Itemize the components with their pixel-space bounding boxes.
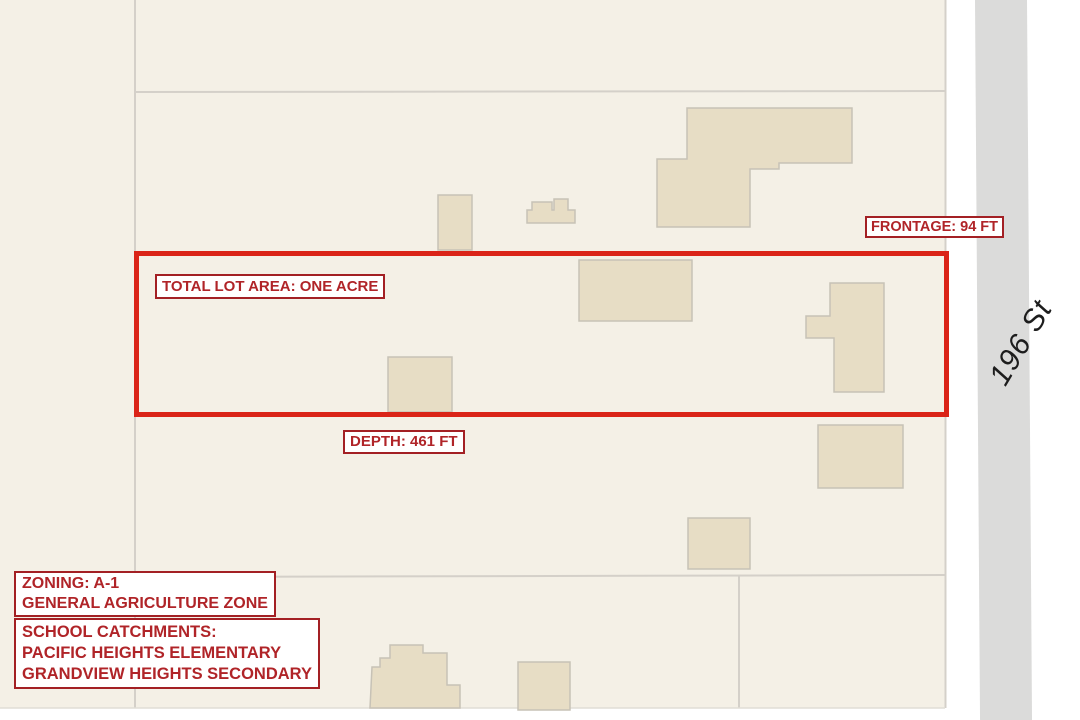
- building-footprint: [688, 518, 750, 569]
- frontage-label: FRONTAGE: 94 FT: [865, 216, 1004, 238]
- building-footprint: [518, 662, 570, 710]
- zoning-label: ZONING: A-1 GENERAL AGRICULTURE ZONE: [14, 571, 276, 617]
- building-footprint: [527, 199, 575, 223]
- school-label-line2: PACIFIC HEIGHTS ELEMENTARY: [22, 643, 312, 664]
- building-footprint: [579, 260, 692, 321]
- lot-area-label: TOTAL LOT AREA: ONE ACRE: [155, 274, 385, 299]
- building-footprint: [438, 195, 472, 250]
- zoning-label-line1: ZONING: A-1: [22, 574, 268, 594]
- parcel-line-north: [135, 91, 945, 92]
- school-label-line3: GRANDVIEW HEIGHTS SECONDARY: [22, 664, 312, 685]
- building-footprint: [818, 425, 903, 488]
- school-label-line1: SCHOOL CATCHMENTS:: [22, 622, 312, 643]
- parcel-map: TOTAL LOT AREA: ONE ACRE FRONTAGE: 94 FT…: [0, 0, 1080, 720]
- zoning-label-line2: GENERAL AGRICULTURE ZONE: [22, 594, 268, 614]
- depth-label: DEPTH: 461 FT: [343, 430, 465, 454]
- school-catchments-label: SCHOOL CATCHMENTS: PACIFIC HEIGHTS ELEME…: [14, 618, 320, 689]
- building-footprint: [388, 357, 452, 412]
